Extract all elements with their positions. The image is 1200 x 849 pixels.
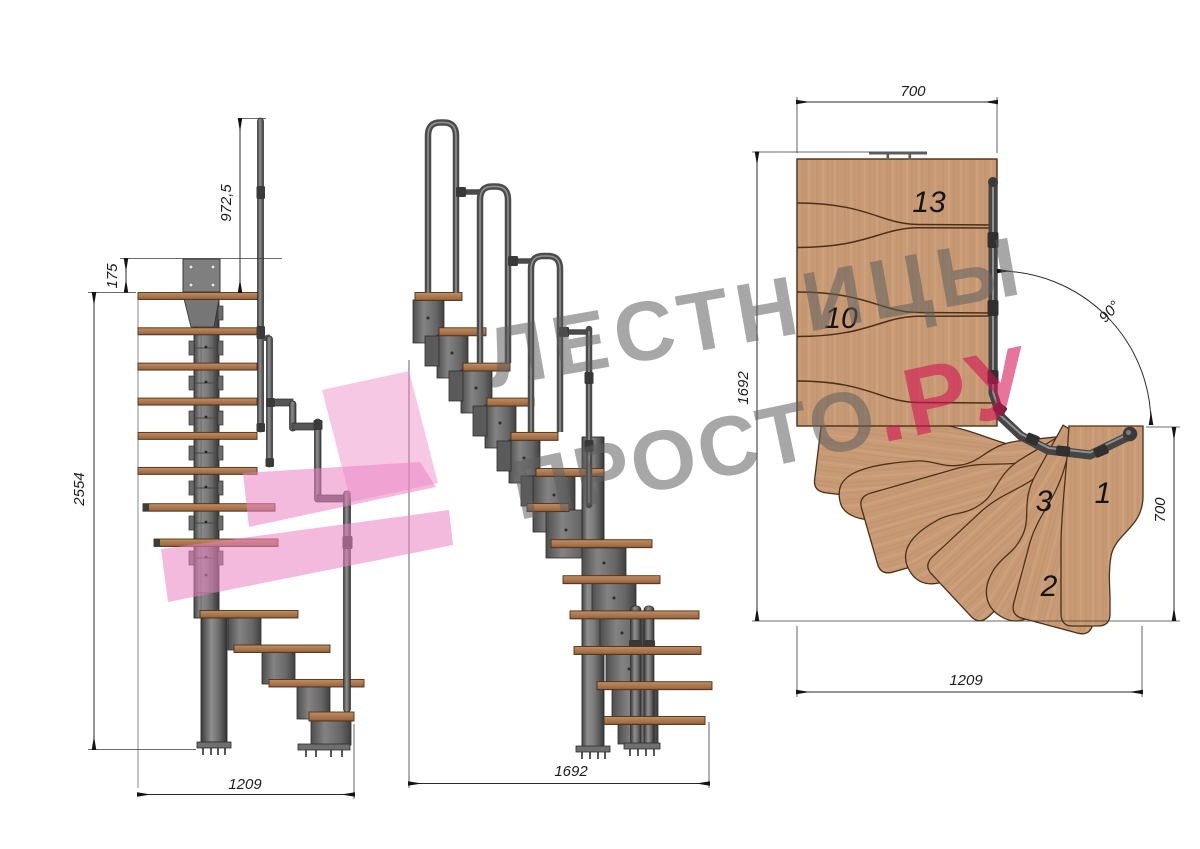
- svg-text:3: 3: [1036, 485, 1053, 518]
- svg-text:1692: 1692: [554, 763, 588, 780]
- svg-text:1: 1: [1095, 477, 1112, 510]
- svg-text:700: 700: [1152, 497, 1169, 523]
- svg-text:700: 700: [900, 83, 926, 100]
- svg-text:2554: 2554: [71, 472, 88, 506]
- svg-text:972,5: 972,5: [218, 184, 235, 222]
- svg-text:13: 13: [912, 186, 946, 219]
- svg-text:2: 2: [1040, 570, 1058, 603]
- svg-text:1209: 1209: [228, 776, 262, 793]
- svg-text:1209: 1209: [949, 672, 983, 689]
- svg-text:175: 175: [104, 263, 121, 289]
